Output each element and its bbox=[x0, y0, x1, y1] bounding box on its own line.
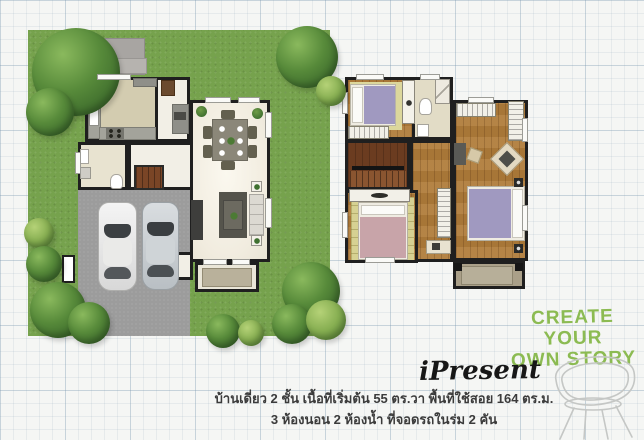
coffee-table bbox=[223, 200, 243, 230]
master-bedroom bbox=[453, 100, 528, 261]
window bbox=[205, 97, 231, 103]
bedroom3-wardrobe bbox=[349, 189, 410, 202]
balcony-post bbox=[454, 263, 462, 271]
potted-plant bbox=[252, 108, 263, 119]
chair-sketch-icon bbox=[540, 348, 644, 440]
balcony bbox=[453, 261, 525, 289]
stairwell bbox=[345, 140, 410, 190]
bedroom3-bed bbox=[358, 202, 408, 260]
poster-canvas: CREATE YOUR OWN STORY iPresent บ้านเดี่ย… bbox=[0, 0, 644, 440]
stair-rail bbox=[352, 166, 404, 170]
brand-title: iPresent bbox=[405, 355, 556, 388]
bush bbox=[26, 246, 62, 282]
bedroom-2 bbox=[345, 77, 415, 140]
stove bbox=[106, 128, 124, 139]
dining-chair bbox=[248, 126, 257, 139]
window bbox=[203, 259, 227, 265]
plant-pedestal bbox=[251, 235, 262, 246]
washer bbox=[80, 167, 91, 179]
hall-cabinet bbox=[161, 80, 175, 96]
bedroom-3 bbox=[345, 190, 418, 263]
bedroom2-wardrobe bbox=[348, 126, 389, 139]
armchair bbox=[490, 142, 524, 176]
dining-chair bbox=[221, 110, 235, 119]
dining-chair bbox=[203, 145, 212, 158]
stair-treads bbox=[350, 171, 406, 187]
car-silver-rear-window bbox=[147, 265, 174, 277]
window bbox=[522, 118, 528, 142]
bedroom3-pillows bbox=[361, 205, 405, 215]
window bbox=[420, 74, 440, 80]
description-line1: บ้านเดี่ยว 2 ชั้น เนื้อที่เริ่มต้น 55 ตร… bbox=[214, 388, 554, 409]
tree bbox=[68, 302, 110, 344]
hall-shelving bbox=[437, 188, 451, 238]
bedroom2-pillow bbox=[352, 87, 363, 123]
bush bbox=[306, 300, 346, 340]
bedroom2-blanket bbox=[364, 86, 395, 124]
staircase bbox=[134, 165, 164, 190]
bedroom2-rug bbox=[350, 82, 402, 130]
balcony-mat bbox=[461, 266, 513, 285]
car-white-windshield bbox=[104, 224, 131, 238]
toilet-2 bbox=[419, 98, 432, 115]
desk-chair bbox=[466, 147, 483, 164]
bathroom-2 bbox=[412, 77, 453, 140]
plant-pedestal bbox=[251, 181, 262, 192]
sideboard-tv bbox=[174, 112, 186, 120]
toilet bbox=[110, 174, 123, 189]
tree bbox=[26, 88, 74, 136]
window bbox=[468, 97, 494, 103]
laptop bbox=[432, 243, 440, 250]
sofa bbox=[249, 194, 264, 236]
master-bed bbox=[467, 186, 525, 241]
tv-console bbox=[191, 200, 203, 240]
dining-chair bbox=[221, 161, 235, 170]
master-wardrobe-2 bbox=[508, 101, 524, 141]
first-floor-plan bbox=[0, 0, 344, 440]
balcony-post bbox=[515, 263, 523, 271]
car-white-rear-window bbox=[104, 267, 131, 279]
dining-table bbox=[212, 119, 248, 161]
bedroom3-blanket bbox=[360, 217, 406, 258]
gate bbox=[62, 255, 75, 283]
porch-mat bbox=[202, 268, 252, 287]
master-bed-pillows bbox=[512, 189, 523, 238]
window bbox=[356, 74, 384, 80]
window bbox=[265, 198, 272, 228]
tree bbox=[206, 314, 240, 348]
speaker bbox=[514, 178, 523, 187]
terrace-step bbox=[117, 58, 147, 74]
dining-chair bbox=[248, 145, 257, 158]
window bbox=[238, 97, 260, 103]
potted-plant bbox=[196, 106, 207, 117]
tagline-line1: CREATE YOUR bbox=[502, 305, 643, 351]
bedroom2-cabinet bbox=[402, 80, 415, 124]
description-line2: 3 ห้องนอน 2 ห้องน้ำ ที่จอดรถในร่ม 2 คัน bbox=[264, 409, 504, 430]
bedroom2-bed bbox=[350, 84, 396, 126]
car-white-roof bbox=[103, 239, 132, 266]
bush bbox=[316, 76, 346, 106]
bush bbox=[238, 320, 264, 346]
bedroom3-rug bbox=[351, 197, 414, 260]
bath2-sink bbox=[417, 124, 429, 137]
bush bbox=[24, 218, 54, 248]
car-silver-windshield bbox=[147, 222, 174, 236]
master-wardrobe bbox=[456, 103, 496, 117]
wardrobe-handle bbox=[371, 193, 388, 198]
bath-sink bbox=[80, 149, 89, 164]
master-bed-blanket bbox=[469, 189, 511, 238]
speaker bbox=[514, 244, 523, 253]
hall-desk bbox=[426, 240, 451, 254]
window bbox=[232, 259, 250, 265]
window bbox=[522, 205, 528, 231]
desk bbox=[454, 143, 466, 165]
dining-chair bbox=[203, 126, 212, 139]
car-silver-roof bbox=[146, 237, 175, 264]
armchair-seat bbox=[499, 151, 516, 168]
kitchen-bench bbox=[133, 78, 157, 87]
window bbox=[365, 257, 395, 263]
upper-hall bbox=[410, 140, 453, 262]
window bbox=[75, 152, 81, 174]
window bbox=[97, 74, 131, 80]
shower bbox=[435, 79, 450, 104]
window bbox=[265, 112, 272, 138]
